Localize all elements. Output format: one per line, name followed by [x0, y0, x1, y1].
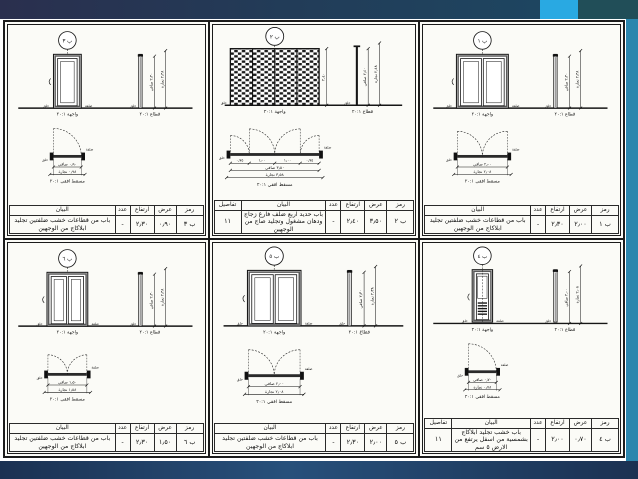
width-clear-dimension: ٢٫٠٠ صافي	[473, 162, 492, 167]
elevation-label: واجهة ٢٠:١	[263, 109, 285, 115]
col-height: ارتفاع	[546, 206, 570, 216]
height-dimension: ٢٫٣٠ صافي	[148, 73, 153, 91]
cell-count: -	[326, 210, 341, 233]
leaf-label: ضلفة	[85, 104, 93, 108]
col-width: عرض	[154, 206, 176, 216]
cell-code: ب ٤	[592, 428, 619, 451]
door-schedule-table: رمز عرض ارتفاع عدد البيان تفاصيل ب ٢ ٣٫٥…	[214, 200, 415, 234]
section-label: قطاع ٢٠:١	[555, 327, 576, 333]
door-panel-frame: ب ١٢٫٣٠ صافي٢٫٣٨ نجارةواجهة ٢٠:١قطاع ٢٠:…	[422, 24, 621, 236]
cell-description: باب من قطاعات خشب ضلفتين تجليد ابلاكاج م…	[214, 434, 326, 452]
height-dimension: ٢٫٣٠ صافي	[148, 291, 153, 309]
door-code: ب ٤	[478, 254, 488, 260]
frame-label: حلق	[446, 104, 452, 108]
leaf-label: ضلفة	[501, 363, 509, 367]
plan-label: مسقط افقي ٢٠:١	[256, 399, 292, 405]
door-drawing-b2: ب ٢٢٫٤٠٢٫٤٠ صافي٢٫٤٨ نجارةواجهة ٢٠:١قطاع…	[214, 26, 415, 200]
width-clear-dimension: ٣٫٥٠ صافي	[265, 165, 284, 170]
cell-count: -	[531, 428, 546, 451]
cell-details: ١١	[425, 428, 452, 451]
frame-label: حلق	[130, 104, 136, 108]
section-label: قطاع ٢٠:١	[140, 330, 161, 336]
col-code: رمز	[592, 418, 619, 428]
door-drawing-b5: ب ٥٢٫٣٠ صافي٢٫٣٨ نجارةواجهة ٢٠:١قطاع ٢٠:…	[214, 244, 415, 423]
width-clear-dimension: ١٫٥٠ صافي	[58, 380, 77, 385]
leaf-label: ضلفة	[304, 367, 312, 371]
door-schedule-table: رمز عرض ارتفاع عدد البيان ب ١ ٢٫٠٠ ٢٫٣٠ …	[424, 205, 619, 234]
door-drawing-b3: ب ٣٢٫٣٠ صافي٢٫٣٨ نجارةواجهة ٢٠:١قطاع ٢٠:…	[9, 26, 204, 205]
col-description: البيان	[241, 200, 326, 210]
plan-label: مسقط افقي ٢٠:١	[50, 397, 86, 403]
height-dimension: ٢٫٣٨ نجارة	[575, 71, 580, 88]
height-dimension: ٢٫٣٨ نجارة	[159, 289, 164, 306]
plan-label: مسقط افقي ٢٠:١	[465, 179, 501, 185]
height-dimension: ٢٫٣٠ صافي	[564, 73, 569, 91]
cell-width: ٢٫٠٠	[570, 216, 592, 234]
height-dimension: ٢٫٠٨ نجارة	[575, 286, 580, 303]
door-drawing-b6: ب ٦٢٫٣٠ صافي٢٫٣٨ نجارةواجهة ٢٠:١قطاع ٢٠:…	[9, 244, 204, 423]
col-code: رمز	[176, 206, 203, 216]
col-description: البيان	[214, 424, 326, 434]
cell-description: باب من قطاعات خشب ضلفتين تجليد ابلاكاج م…	[10, 216, 116, 234]
leaf-label: ضلفة	[86, 148, 94, 152]
door-panel-b1: ب ١٢٫٣٠ صافي٢٫٣٨ نجارةواجهة ٢٠:١قطاع ٢٠:…	[419, 21, 624, 239]
frame-label: حلق	[218, 156, 224, 160]
door-panel-b5: ب ٥٢٫٣٠ صافي٢٫٣٨ نجارةواجهة ٢٠:١قطاع ٢٠:…	[209, 239, 420, 457]
col-width: عرض	[365, 424, 387, 434]
door-panel-frame: ب ٥٢٫٣٠ صافي٢٫٣٨ نجارةواجهة ٢٠:١قطاع ٢٠:…	[212, 242, 417, 454]
cell-code: ب ٥	[387, 434, 414, 452]
col-details: تفاصيل	[214, 200, 241, 210]
cell-height: ٢٫٣٠	[341, 434, 365, 452]
cell-details: ١١	[214, 210, 241, 233]
cell-height: ٢٫٣٠	[130, 216, 154, 234]
door-code: ب ٥	[269, 254, 279, 260]
plan-segment-dimension: ٠٫٧٥	[306, 159, 313, 163]
cell-count: -	[326, 434, 341, 452]
col-code: رمز	[176, 424, 203, 434]
slide-corner-block	[578, 0, 638, 19]
frame-label: حلق	[37, 376, 43, 380]
col-count: عدد	[531, 206, 546, 216]
leaf-label: ضلفة	[512, 104, 520, 108]
door-panel-frame: ب ٦٢٫٣٠ صافي٢٫٣٨ نجارةواجهة ٢٠:١قطاع ٢٠:…	[7, 242, 206, 454]
cell-description: باب حديد اربع ضلف فارغ زجاج ودهان مشغول …	[241, 210, 326, 233]
frame-label: حلق	[236, 322, 242, 326]
col-height: ارتفاع	[341, 424, 365, 434]
width-clear-dimension: ٠٫٩٠ صافي	[58, 162, 77, 167]
cell-count: -	[531, 216, 546, 234]
col-count: عدد	[326, 200, 341, 210]
col-details: تفاصيل	[425, 418, 452, 428]
door-schedule-table: رمز عرض ارتفاع عدد البيان ب ٦ ١٫٥٠ ٢٫٣٠ …	[9, 423, 204, 452]
plan-label: مسقط افقي ٢٠:١	[50, 179, 86, 185]
col-code: رمز	[387, 200, 414, 210]
col-code: رمز	[387, 424, 414, 434]
col-width: عرض	[154, 424, 176, 434]
slide-right-stripe	[626, 19, 638, 461]
door-schedule-table: رمز عرض ارتفاع عدد البيان تفاصيل ب ٤ ٠٫٧…	[424, 418, 619, 452]
elevation-label: واجهة ٢٠:١	[57, 330, 78, 336]
door-code: ب ٦	[63, 256, 73, 262]
frame-label: حلق	[130, 322, 136, 326]
cell-height: ٢٫٠٠	[546, 428, 570, 451]
section-label: قطاع ٢٠:١	[140, 111, 161, 117]
width-carpentry-dimension: ٣٫٥٨ نجارة	[265, 172, 284, 177]
door-panel-frame: ب ٣٢٫٣٠ صافي٢٫٣٨ نجارةواجهة ٢٠:١قطاع ٢٠:…	[7, 24, 206, 236]
cell-code: ب ١	[592, 216, 619, 234]
cell-description: باب من قطاعات خشب ضلفتين تجليد ابلاكاج م…	[425, 216, 531, 234]
width-carpentry-dimension: ٢٫٠٨ نجارة	[265, 389, 284, 394]
section-label: قطاع ٢٠:١	[348, 330, 369, 336]
door-code: ب ١	[478, 38, 488, 44]
section-label: قطاع ٢٠:١	[352, 109, 373, 115]
col-code: رمز	[592, 206, 619, 216]
col-count: عدد	[115, 206, 130, 216]
width-carpentry-dimension: ٢٫٠٨ نجارة	[474, 169, 493, 174]
frame-label: حلق	[462, 319, 468, 323]
elevation-label: واجهة ٢٠:١	[263, 330, 285, 336]
leaf-label: ضلفة	[304, 322, 312, 326]
height-dimension: ٢٫٤٠ صافي	[362, 68, 367, 87]
frame-label: حلق	[42, 158, 48, 162]
plan-label: مسقط افقي ٢٠:١	[257, 182, 293, 188]
door-schedule-table: رمز عرض ارتفاع عدد البيان ب ٣ ٠٫٩٠ ٢٫٣٠ …	[9, 205, 204, 234]
height-dimension: ٢٫٣٨ نجارة	[159, 71, 164, 88]
cell-height: ٢٫٣٠	[130, 434, 154, 452]
width-clear-dimension: ٠٫٧٠ صافي	[473, 377, 492, 382]
plan-segment-dimension: ٠٫٧٥	[236, 159, 243, 163]
frame-label: حلق	[43, 104, 49, 108]
cell-height: ٢٫٤٠	[341, 210, 365, 233]
leaf-label: ضلفة	[91, 366, 99, 370]
col-count: عدد	[531, 418, 546, 428]
height-dimension: ٢٫٣٨ نجارة	[369, 286, 374, 305]
col-width: عرض	[570, 206, 592, 216]
height-dimension: ٢٫٤٠	[320, 73, 325, 81]
slide-accent-block	[540, 0, 578, 19]
height-dimension: ٢٫٠٠ صافي	[564, 288, 569, 306]
frame-label: حلق	[236, 377, 242, 381]
door-panel-b2: ب ٢٢٫٤٠٢٫٤٠ صافي٢٫٤٨ نجارةواجهة ٢٠:١قطاع…	[209, 21, 420, 239]
col-description: البيان	[10, 424, 116, 434]
frame-label: حلق	[546, 104, 552, 108]
leaf-label: ضلفة	[91, 322, 99, 326]
plan-label: مسقط افقي ٢٠:١	[465, 394, 501, 400]
plan-segment-dimension: ١٫٠٠	[283, 159, 290, 163]
col-width: عرض	[570, 418, 592, 428]
door-panel-frame: ب ٢٢٫٤٠٢٫٤٠ صافي٢٫٤٨ نجارةواجهة ٢٠:١قطاع…	[212, 24, 417, 236]
cell-width: ٣٫٥٠	[365, 210, 387, 233]
col-description: البيان	[452, 418, 531, 428]
col-height: ارتفاع	[341, 200, 365, 210]
door-schedule-table: رمز عرض ارتفاع عدد البيان ب ٥ ٢٫٠٠ ٢٫٣٠ …	[214, 423, 415, 452]
door-code: ب ٢	[269, 34, 279, 40]
door-panel-b4: ب ٤٢٫٠٠ صافي٢٫٠٨ نجارةواجهة ٢٠:١قطاع ٢٠:…	[419, 239, 624, 457]
col-description: البيان	[425, 206, 531, 216]
frame-label: حلق	[37, 322, 43, 326]
cell-width: ١٫٥٠	[154, 434, 176, 452]
frame-label: حلق	[446, 158, 452, 162]
cell-width: ٠٫٧٠	[570, 428, 592, 451]
door-panel-b3: ب ٣٢٫٣٠ صافي٢٫٣٨ نجارةواجهة ٢٠:١قطاع ٢٠:…	[4, 21, 209, 239]
frame-label: حلق	[220, 101, 226, 105]
door-panel-b6: ب ٦٢٫٣٠ صافي٢٫٣٨ نجارةواجهة ٢٠:١قطاع ٢٠:…	[4, 239, 209, 457]
cell-code: ب ٢	[387, 210, 414, 233]
leaf-label: ضلفة	[497, 319, 505, 323]
section-label: قطاع ٢٠:١	[555, 112, 576, 118]
cell-width: ٢٫٠٠	[365, 434, 387, 452]
height-dimension: ٢٫٣٠ صافي	[357, 290, 362, 309]
col-count: عدد	[326, 424, 341, 434]
col-height: ارتفاع	[130, 424, 154, 434]
width-carpentry-dimension: ١٫٥٨ نجارة	[58, 387, 77, 392]
height-dimension: ٢٫٤٨ نجارة	[373, 65, 378, 83]
slide-bottom-bar	[0, 461, 638, 479]
elevation-label: واجهة ٢٠:١	[472, 327, 493, 333]
cell-description: باب خشب تجليد ابلاكاج بشمسية من اسفل يرت…	[452, 428, 531, 451]
col-count: عدد	[115, 424, 130, 434]
frame-label: حلق	[344, 101, 350, 105]
width-carpentry-dimension: ٠٫٧٨ نجارة	[474, 384, 493, 389]
drawing-sheet: ب ٣٢٫٣٠ صافي٢٫٣٨ نجارةواجهة ٢٠:١قطاع ٢٠:…	[3, 20, 625, 458]
door-drawing-b1: ب ١٢٫٣٠ صافي٢٫٣٨ نجارةواجهة ٢٠:١قطاع ٢٠:…	[424, 26, 619, 205]
leaf-label: ضلفة	[512, 148, 520, 152]
frame-label: حلق	[339, 322, 345, 326]
cell-code: ب ٣	[176, 216, 203, 234]
door-code: ب ٣	[63, 38, 73, 44]
leaf-label: ضلفة	[323, 146, 331, 150]
cell-width: ٠٫٩٠	[154, 216, 176, 234]
col-height: ارتفاع	[546, 418, 570, 428]
frame-label: حلق	[546, 319, 552, 323]
col-width: عرض	[365, 200, 387, 210]
frame-label: حلق	[458, 373, 464, 377]
col-height: ارتفاع	[130, 206, 154, 216]
door-drawing-b4: ب ٤٢٫٠٠ صافي٢٫٠٨ نجارةواجهة ٢٠:١قطاع ٢٠:…	[424, 244, 619, 418]
width-clear-dimension: ٢٫٠٠ صافي	[264, 381, 283, 386]
plan-segment-dimension: ١٫٠٠	[258, 159, 265, 163]
cell-code: ب ٦	[176, 434, 203, 452]
width-carpentry-dimension: ٠٫٩٨ نجارة	[58, 169, 77, 174]
cell-height: ٢٫٣٠	[546, 216, 570, 234]
elevation-label: واجهة ٢٠:١	[57, 111, 78, 117]
cell-count: -	[115, 216, 130, 234]
col-description: البيان	[10, 206, 116, 216]
cell-count: -	[115, 434, 130, 452]
door-panel-frame: ب ٤٢٫٠٠ صافي٢٫٠٨ نجارةواجهة ٢٠:١قطاع ٢٠:…	[422, 242, 621, 454]
elevation-label: واجهة ٢٠:١	[472, 112, 493, 118]
cell-description: باب من قطاعات خشب ضلفتين تجليد ابلاكاج م…	[10, 434, 116, 452]
